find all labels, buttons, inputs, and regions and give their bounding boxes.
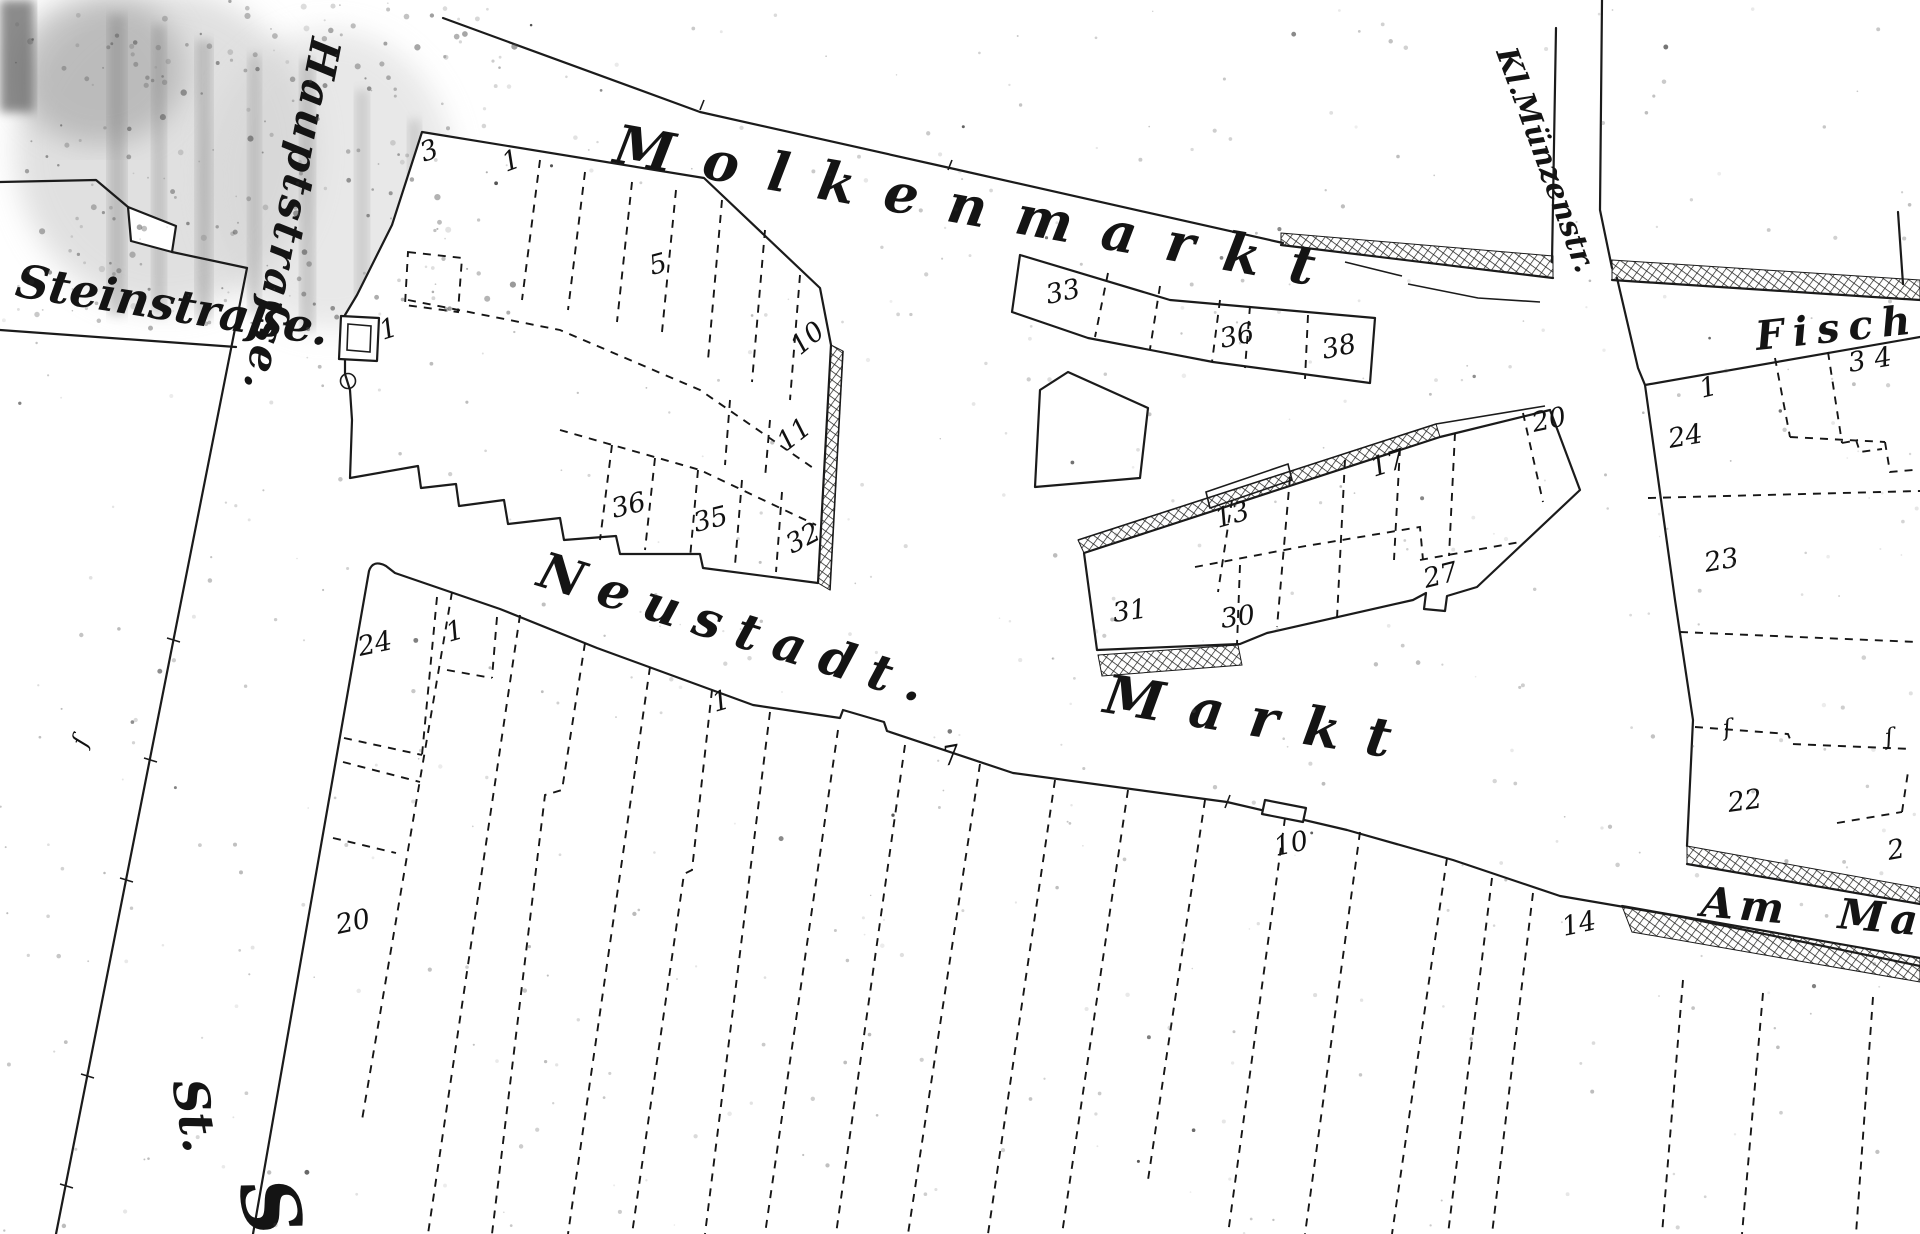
parcel-number: 7 (940, 739, 963, 773)
parcel-number: 20 (332, 903, 373, 941)
parcel-number: 22 (1725, 783, 1764, 819)
street-label-st: St. (160, 1074, 228, 1156)
map-canvas: Steinstraße. Hauptstraſse. Molkenmarkt K… (0, 0, 1920, 1234)
parcel-number: 3 (1846, 345, 1868, 379)
street-label-markt: Markt (1098, 661, 1422, 774)
fische-block (1645, 337, 1920, 846)
parcel-number: 31 (1111, 593, 1149, 628)
parcel-number: 10 (1271, 825, 1311, 862)
cadastral-map-svg: Steinstraße. Hauptstraſse. Molkenmarkt K… (0, 0, 1920, 1234)
parcel-number: 1 (708, 684, 733, 719)
parcel-number: 30 (1219, 599, 1257, 634)
parcel-number: 20 (1528, 401, 1569, 439)
parcel-number: 24 (354, 625, 395, 663)
boundary-mark: ſ (1719, 715, 1736, 743)
parcel-number: 24 (1665, 418, 1705, 455)
parcel-number: 23 (1701, 542, 1741, 579)
boundary-mark: ſ (67, 730, 96, 752)
street-label-kl-muenzenstr: Kl.Münzenstr. (1488, 42, 1602, 278)
parcel-number: 2 (1884, 833, 1907, 867)
central-block (1078, 406, 1580, 676)
street-label-fische: Fische (1752, 292, 1920, 360)
parcel-number: 4 (1871, 341, 1894, 375)
pentagon-building (1035, 372, 1148, 487)
street-label-st-partial: S (219, 1170, 320, 1234)
parcel-number: 14 (1559, 905, 1599, 942)
parcel-number: 1 (442, 614, 467, 649)
parcel-number: 1 (1696, 371, 1720, 405)
